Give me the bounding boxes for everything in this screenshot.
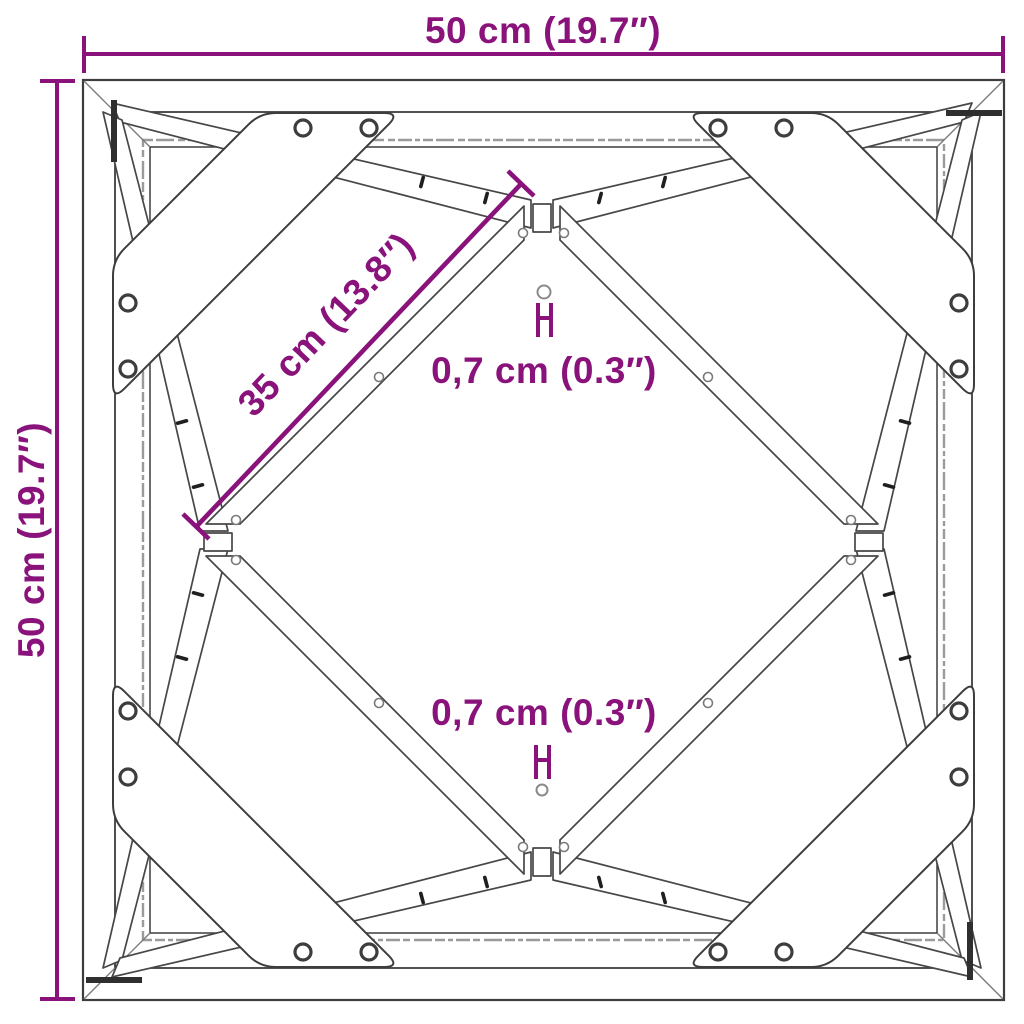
screw-hole — [361, 944, 377, 960]
slot-hole — [599, 194, 601, 203]
screw-hole — [951, 361, 967, 377]
dimension-height-label: 50 cm (19.7″) — [11, 422, 52, 658]
corner-gussets — [113, 113, 974, 967]
diamond-braces — [204, 204, 883, 876]
hole-top — [538, 286, 551, 299]
screw-hole — [295, 120, 311, 136]
slot-hole — [901, 657, 910, 659]
joint-key-bottom — [533, 848, 551, 876]
screw-hole — [120, 361, 136, 377]
screw-hole — [776, 120, 792, 136]
gusset-top-right — [694, 113, 974, 393]
brace-hole — [519, 843, 528, 852]
gusset-bottom-right — [694, 687, 974, 967]
dimension-width-label: 50 cm (19.7″) — [425, 10, 661, 51]
slot-hole — [485, 194, 487, 203]
frame-far-edge-textured — [143, 140, 944, 940]
dimension-hole-top: 0,7 cm (0.3″) — [431, 303, 657, 391]
slot-hole — [421, 894, 423, 903]
screw-hole — [361, 120, 377, 136]
screw-hole — [951, 295, 967, 311]
tab-bottom-left — [86, 977, 142, 983]
slot-hole — [485, 878, 487, 887]
slot-hole — [901, 421, 910, 423]
brace-hole — [375, 373, 384, 382]
screw-hole — [776, 944, 792, 960]
slot-hole — [178, 657, 187, 659]
tab-top-right — [946, 110, 1002, 116]
brace-hole — [232, 556, 241, 565]
screw-hole — [120, 295, 136, 311]
tab-top-left — [111, 100, 117, 162]
slot-hole — [663, 178, 665, 187]
brace-hole — [560, 229, 569, 238]
joint-key-top — [533, 204, 551, 232]
brace-hole — [847, 516, 856, 525]
slot-hole — [178, 421, 187, 423]
frame-drawing: 50 cm (19.7″) 50 cm (19.7″) 35 cm (13.8″… — [0, 0, 1024, 1024]
screw-hole — [710, 120, 726, 136]
gusset-top-left — [113, 113, 393, 393]
slot-hole — [885, 485, 894, 487]
tab-bottom-right — [967, 922, 973, 980]
brace-hole — [232, 516, 241, 525]
brace-hole — [375, 699, 384, 708]
slot-hole — [599, 878, 601, 887]
screw-hole — [120, 703, 136, 719]
dimension-hole-bottom: 0,7 cm (0.3″) — [431, 692, 657, 779]
screw-hole — [951, 769, 967, 785]
slot-hole — [194, 485, 203, 487]
screw-hole — [120, 769, 136, 785]
joint-key-right — [855, 533, 883, 551]
dimension-height: 50 cm (19.7″) — [11, 81, 75, 999]
screw-hole — [295, 944, 311, 960]
dimension-hole-bottom-label: 0,7 cm (0.3″) — [431, 692, 657, 733]
screw-hole — [710, 944, 726, 960]
hole-bottom — [537, 785, 548, 796]
screw-hole — [951, 703, 967, 719]
brace-hole — [704, 699, 713, 708]
slot-hole — [421, 178, 423, 187]
brace-hole — [560, 843, 569, 852]
brace-hole — [704, 373, 713, 382]
dimension-width: 50 cm (19.7″) — [84, 10, 1003, 73]
slot-hole — [885, 593, 894, 595]
dimension-hole-top-label: 0,7 cm (0.3″) — [431, 350, 657, 391]
gusset-bottom-left — [113, 687, 393, 967]
dimension-diagram: 50 cm (19.7″) 50 cm (19.7″) 35 cm (13.8″… — [0, 0, 1024, 1024]
slot-hole — [194, 593, 203, 595]
slot-hole — [663, 894, 665, 903]
frame-far-edge — [150, 147, 937, 933]
brace-hole — [847, 556, 856, 565]
brace-hole — [519, 229, 528, 238]
